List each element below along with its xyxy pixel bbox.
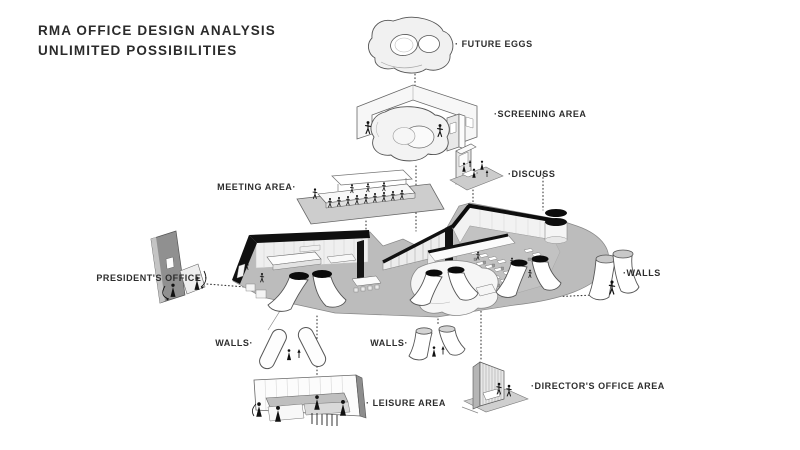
callout-walls-right: ·WALLS — [623, 268, 661, 278]
discuss-sketch — [450, 144, 503, 190]
callout-presidents-office: PRESIDENT'S OFFICE · — [45, 273, 208, 283]
callout-screening-area: ·SCREENING AREA — [494, 109, 586, 119]
callout-meeting-area: MEETING AREA· — [178, 182, 296, 192]
diagram-canvas: RMA OFFICE DESIGN ANALYSIS UNLIMITED POS… — [0, 0, 800, 450]
callout-discuss: ·DISCUSS — [508, 169, 555, 179]
axonometric-illustration — [0, 0, 800, 450]
leisure-area-sketch — [252, 375, 366, 426]
main-floor-sketch — [232, 203, 609, 317]
directors-office-sketch — [462, 362, 528, 413]
page-title: RMA OFFICE DESIGN ANALYSIS UNLIMITED POS… — [38, 21, 276, 61]
callout-directors-office: ·DIRECTOR'S OFFICE AREA — [531, 381, 665, 391]
callout-leisure-area: · LEISURE AREA — [366, 398, 446, 408]
title-line-1: RMA OFFICE DESIGN ANALYSIS — [38, 21, 276, 41]
callout-walls-left: WALLS· — [188, 338, 253, 348]
walls-center-sketch — [409, 326, 465, 360]
callout-walls-center: WALLS· — [343, 338, 408, 348]
callout-future-eggs: · FUTURE EGGS — [455, 39, 533, 49]
meeting-area-sketch — [297, 170, 444, 224]
presidents-office-sketch — [151, 231, 206, 303]
title-line-2: UNLIMITED POSSIBILITIES — [38, 41, 276, 61]
walls-left-sketch — [257, 325, 328, 371]
future-eggs-sketch — [368, 17, 452, 73]
